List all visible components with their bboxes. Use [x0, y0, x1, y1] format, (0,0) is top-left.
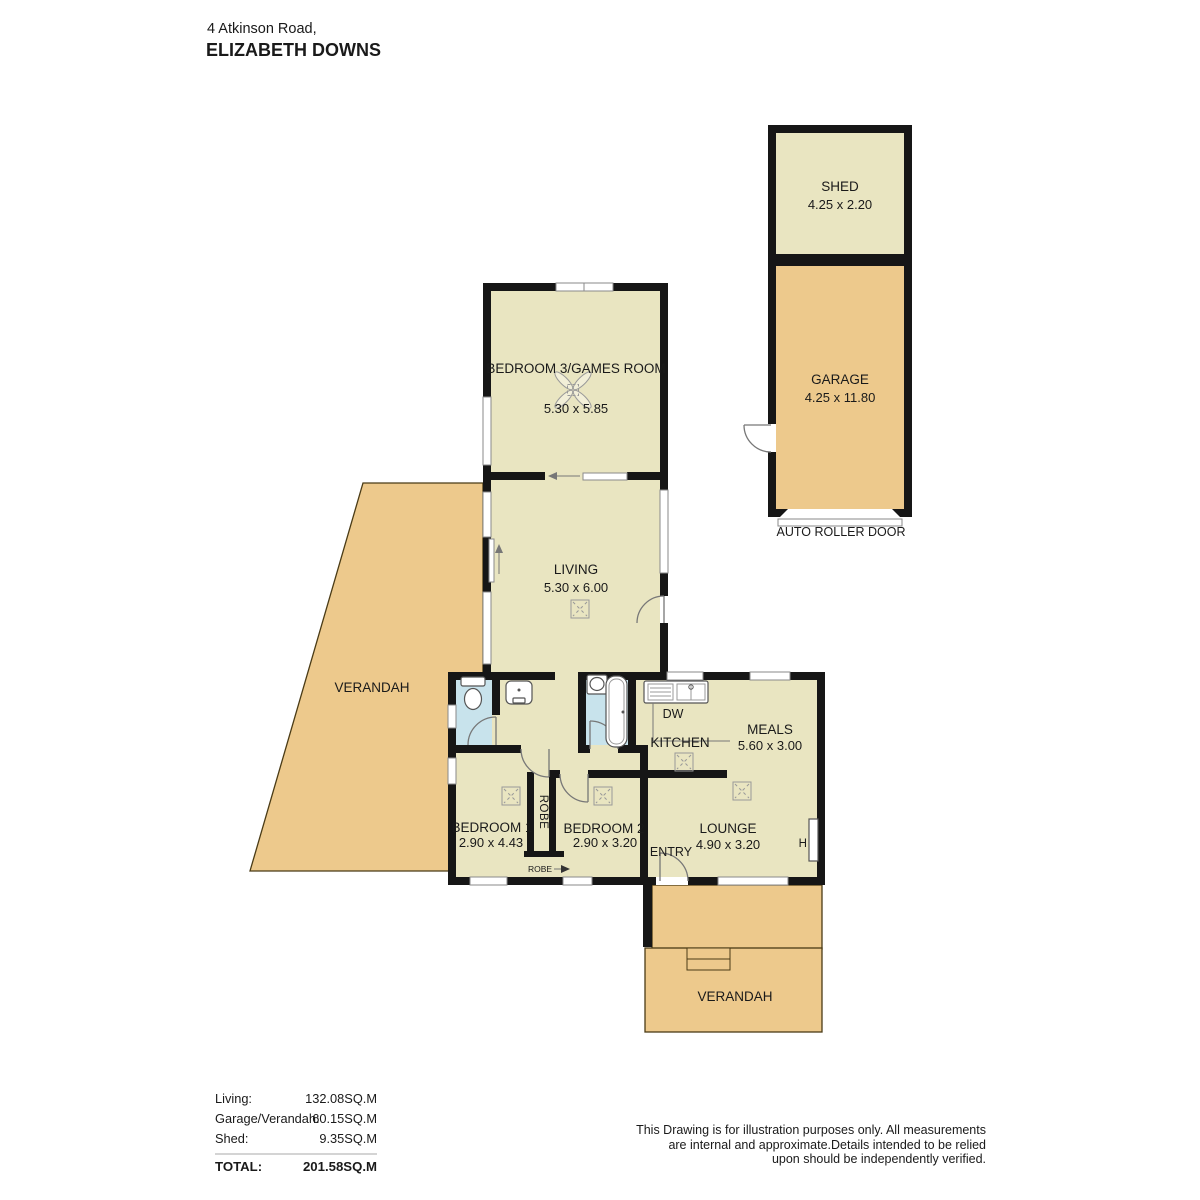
- slider-panel-living: [489, 539, 494, 582]
- lounge-label: LOUNGE: [699, 821, 756, 836]
- laundry-sink-icon: [506, 681, 532, 704]
- slider-panel-bed3: [583, 473, 627, 480]
- heater-label: H: [799, 838, 808, 850]
- bedroom3-label: BEDROOM 3/GAMES ROOM: [486, 361, 665, 376]
- kitchen-bench-sink-icon: [644, 681, 708, 703]
- lounge-dims: 4.90 x 3.20: [696, 837, 760, 852]
- entry-label: ENTRY: [650, 845, 693, 859]
- verandah-bottom-area: VERANDAH: [643, 885, 822, 1032]
- bedroom2-dims: 2.90 x 3.20: [573, 835, 637, 850]
- verandah-step-2: [687, 959, 730, 970]
- upper-wing-floor: [483, 283, 668, 680]
- bedroom1-dims: 2.90 x 4.43: [459, 835, 523, 850]
- roller-door-opening: [780, 509, 900, 517]
- floorplan-svg: VERANDAH VERANDAH: [0, 0, 1200, 1200]
- address-line1: 4 Atkinson Road,: [207, 21, 317, 37]
- legend-total-label: TOTAL:: [215, 1159, 262, 1174]
- legend-total-value: 201.58SQ.M: [303, 1159, 377, 1174]
- legend-row-value: 132.08SQ.M: [305, 1091, 377, 1106]
- legend-row-label: Garage/Verandah:: [215, 1111, 320, 1126]
- bedroom3-dims: 5.30 x 5.85: [544, 401, 608, 416]
- floorplan-page: VERANDAH VERANDAH: [0, 0, 1200, 1200]
- garage-floor: [776, 266, 904, 509]
- garage-dims: 4.25 x 11.80: [805, 390, 876, 405]
- lower-wing-floor: [448, 672, 825, 885]
- disclaimer: This Drawing is for illustration purpose…: [636, 1123, 986, 1166]
- basin-icon: [587, 675, 607, 694]
- garage-block: GARAGE 4.25 x 11.80 AUTO ROLLER DOOR: [744, 258, 912, 539]
- disclaimer-line2: are internal and approximate.Details int…: [668, 1138, 986, 1152]
- bedroom1-label: BEDROOM 1: [451, 820, 532, 835]
- kitchen-label: KITCHEN: [650, 735, 709, 750]
- meals-dims: 5.60 x 3.00: [738, 738, 802, 753]
- dishwasher-label: DW: [663, 707, 684, 721]
- address-line2: ELIZABETH DOWNS: [206, 40, 381, 60]
- meals-label: MEALS: [747, 722, 793, 737]
- auto-roller-door-label: AUTO ROLLER DOOR: [777, 525, 906, 539]
- shed-label: SHED: [821, 179, 859, 194]
- shed-block: SHED 4.25 x 2.20: [768, 125, 912, 262]
- verandah-left-label: VERANDAH: [334, 680, 409, 695]
- verandah-bottom-upper-floor: [652, 885, 822, 949]
- verandah-bottom-label: VERANDAH: [697, 989, 772, 1004]
- garage-door-swing: [744, 425, 771, 452]
- living-dims: 5.30 x 6.00: [544, 580, 608, 595]
- robe-small-label: ROBE: [528, 864, 552, 874]
- legend-row-label: Living:: [215, 1091, 252, 1106]
- garage-label: GARAGE: [811, 372, 869, 387]
- bathtub-icon: [606, 676, 627, 747]
- verandah-step-1: [687, 948, 730, 959]
- legend-row-value: 9.35SQ.M: [319, 1131, 377, 1146]
- robe-tall-label: ROBE: [537, 795, 549, 830]
- living-label: LIVING: [554, 562, 598, 577]
- verandah-side-wall: [643, 885, 652, 947]
- title-block: 4 Atkinson Road, ELIZABETH DOWNS: [206, 21, 381, 60]
- legend-row-value: 60.15SQ.M: [312, 1111, 377, 1126]
- disclaimer-line1: This Drawing is for illustration purpose…: [636, 1123, 986, 1137]
- disclaimer-line3: upon should be independently verified.: [772, 1152, 986, 1166]
- heater-unit: [809, 819, 818, 861]
- shed-dims: 4.25 x 2.20: [808, 197, 872, 212]
- bedroom2-label: BEDROOM 2: [563, 821, 644, 836]
- legend: Living: 132.08SQ.M Garage/Verandah: 60.1…: [215, 1091, 377, 1174]
- legend-row-label: Shed:: [215, 1131, 248, 1146]
